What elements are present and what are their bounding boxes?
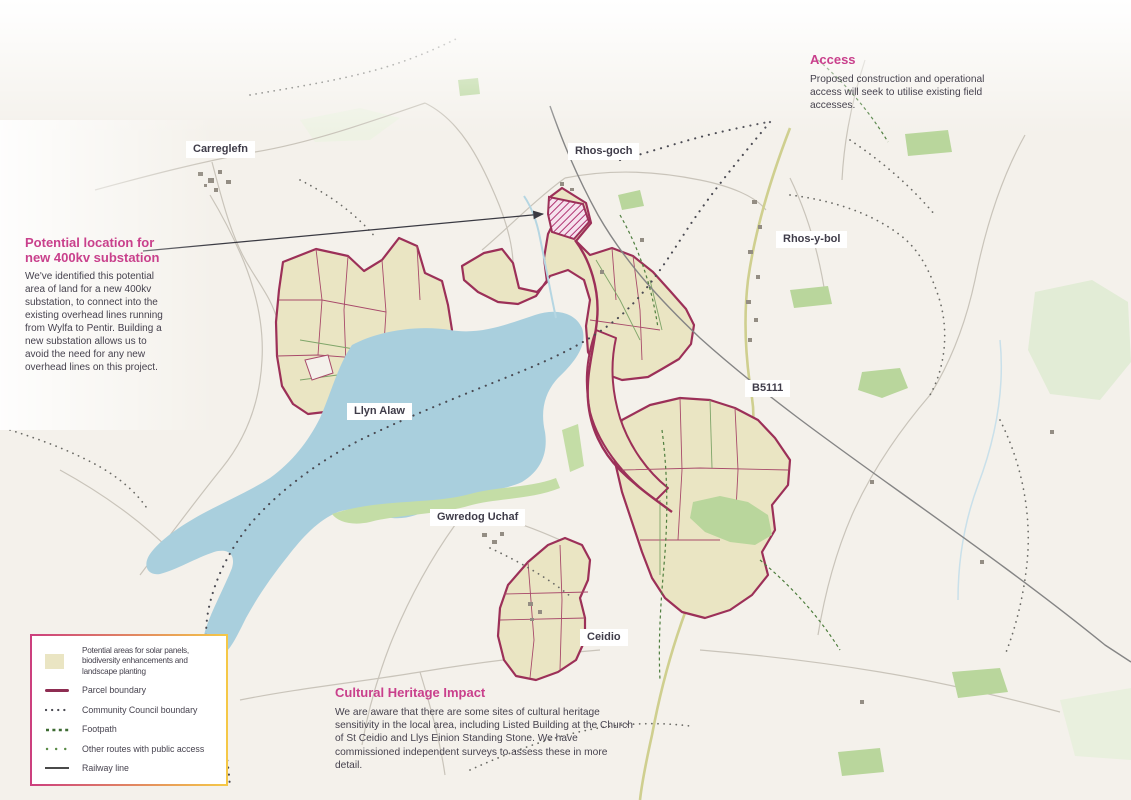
footpath-icon (45, 727, 71, 733)
legend-row-solar-areas: Potential areas for solar panels, biodiv… (45, 646, 218, 677)
legend-label: Community Council boundary (82, 705, 197, 716)
access-title: Access (810, 53, 990, 68)
public-access-route-icon (45, 746, 71, 752)
map-label-ceidio: Ceidio (580, 629, 628, 646)
legend-row-public-access: Other routes with public access (45, 744, 218, 755)
map-label-gwredog-uchaf: Gwredog Uchaf (430, 509, 525, 526)
legend-label: Other routes with public access (82, 744, 204, 755)
heritage-annotation: Cultural Heritage Impact We are aware th… (335, 686, 637, 773)
map-canvas: Carreglefn Rhos-goch Rhos-y-bol B5111 Ll… (0, 0, 1131, 800)
legend-label: Parcel boundary (82, 685, 146, 696)
legend-row-railway: Railway line (45, 763, 218, 774)
legend-label: Potential areas for solar panels, biodiv… (82, 646, 218, 677)
substation-body: We've identified this potential area of … (25, 270, 167, 374)
legend-label: Railway line (82, 763, 129, 774)
legend-row-community-boundary: Community Council boundary (45, 705, 218, 716)
heritage-title: Cultural Heritage Impact (335, 686, 637, 701)
map-label-carreglefn: Carreglefn (186, 141, 255, 158)
substation-annotation: Potential location for new 400kv substat… (25, 236, 167, 374)
parcel-boundary-line-icon (45, 689, 71, 692)
substation-title: Potential location for new 400kv substat… (25, 236, 167, 265)
access-annotation: Access Proposed construction and operati… (810, 53, 990, 113)
map-label-llyn-alaw: Llyn Alaw (347, 403, 412, 420)
legend: Potential areas for solar panels, biodiv… (30, 634, 228, 786)
access-body: Proposed construction and operational ac… (810, 73, 990, 113)
solar-area-swatch-icon (45, 654, 71, 669)
map-label-rhos-y-bol: Rhos-y-bol (776, 231, 847, 248)
legend-row-footpath: Footpath (45, 724, 218, 735)
railway-line-icon (45, 767, 71, 769)
legend-row-parcel-boundary: Parcel boundary (45, 685, 218, 696)
legend-label: Footpath (82, 724, 117, 735)
heritage-body: We are aware that there are some sites o… (335, 706, 637, 773)
map-label-rhos-goch: Rhos-goch (568, 143, 639, 160)
map-label-b5111: B5111 (745, 380, 790, 397)
community-council-boundary-icon (45, 707, 71, 713)
